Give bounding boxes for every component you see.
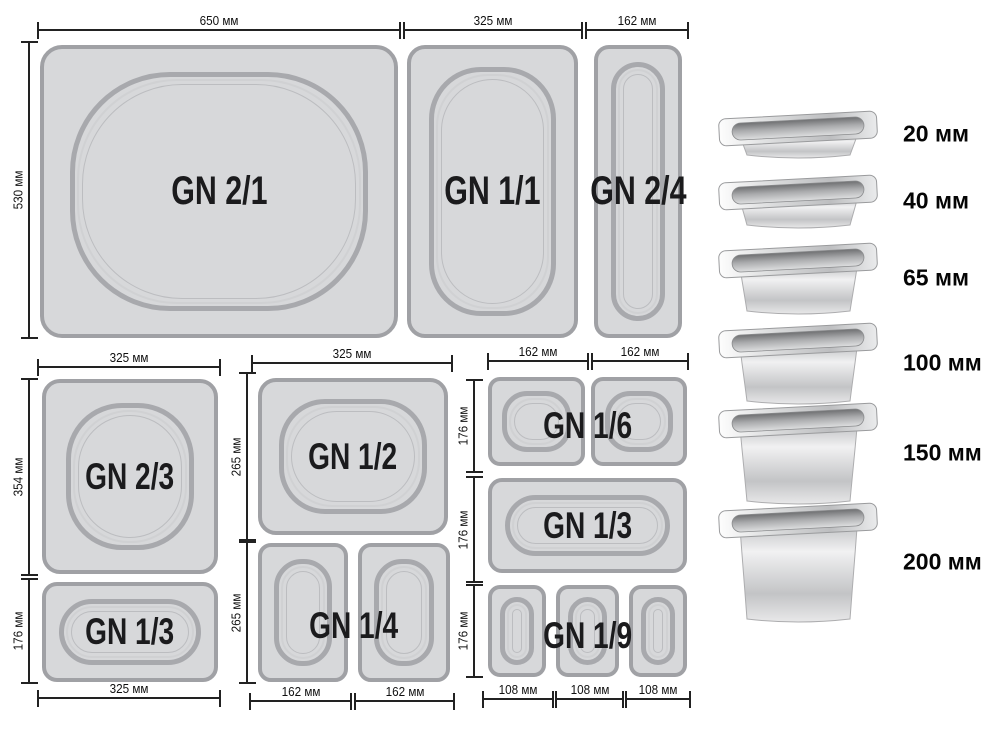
pan-depth-label: 40 мм	[903, 188, 969, 215]
pan-rim	[429, 67, 556, 316]
gastronorm-size-diagram: 650 мм 325 мм 162 мм 530 мм GN 2/1 GN 1/…	[0, 0, 998, 734]
dim-label: 162 мм	[385, 684, 424, 699]
dim-height-265-b: 265 мм	[246, 542, 248, 683]
pan-gn-1-1: GN 1/1	[407, 45, 578, 338]
depth-row: 150 мм	[716, 398, 998, 508]
pan-depth-label: 200 мм	[903, 549, 982, 576]
dim-height-176-c: 176 мм	[473, 585, 475, 677]
pan-rim	[605, 391, 673, 452]
tick	[399, 22, 401, 39]
tick	[453, 693, 455, 710]
dim-left-top-325: 325 мм	[38, 366, 220, 368]
depth-row: 200 мм	[716, 498, 998, 626]
dim-mid-top-325: 325 мм	[252, 362, 452, 364]
dim-label: 108 мм	[499, 682, 538, 697]
tick	[37, 359, 39, 376]
dim-height-176-left: 176 мм	[28, 579, 30, 683]
dim-label: 108 мм	[639, 682, 678, 697]
dim-right-top-162-a: 162 мм	[488, 360, 588, 362]
tick	[239, 372, 256, 374]
dim-label: 265 мм	[229, 593, 244, 632]
dim-height-176-b: 176 мм	[473, 477, 475, 582]
tick	[466, 581, 483, 583]
tick	[487, 353, 489, 370]
tick	[482, 691, 484, 708]
pan-gn-1-9-a	[488, 585, 546, 677]
dim-label: 162 мм	[519, 344, 558, 359]
depth-row: 40 мм	[716, 170, 998, 232]
dim-height-354: 354 мм	[28, 379, 30, 575]
pan-depth-label: 65 мм	[903, 265, 969, 292]
pan-photo	[716, 498, 880, 626]
pan-gn-1-6-b	[591, 377, 687, 466]
tick	[21, 574, 38, 576]
dim-right-bottom-108-b: 108 мм	[556, 698, 623, 700]
dim-label: 325 мм	[110, 350, 149, 365]
pan-photo	[716, 398, 880, 508]
tick	[219, 690, 221, 707]
tick	[37, 22, 39, 39]
pan-rim	[70, 72, 368, 311]
dim-mid-bottom-162-a: 162 мм	[250, 700, 351, 702]
tick	[585, 22, 587, 39]
tick	[21, 378, 38, 380]
tick	[239, 541, 256, 543]
pan-gn-1-4-b	[358, 543, 450, 682]
tick	[249, 693, 251, 710]
tick	[466, 476, 483, 478]
dim-label: 176 мм	[456, 407, 471, 446]
pan-rim	[66, 403, 194, 550]
pan-photo	[716, 106, 880, 162]
tick	[466, 584, 483, 586]
pan-gn-1-4-a	[258, 543, 348, 682]
pan-gn-1-9-c	[629, 585, 687, 677]
tick	[687, 353, 689, 370]
pan-rim	[374, 559, 434, 666]
dim-label: 354 мм	[11, 458, 26, 497]
dim-label: 162 мм	[618, 13, 657, 28]
tick	[625, 691, 627, 708]
pan-rim	[611, 62, 665, 321]
tick	[466, 471, 483, 473]
depth-row: 100 мм	[716, 318, 998, 408]
dim-height-265-a: 265 мм	[246, 373, 248, 540]
tick	[403, 22, 405, 39]
dim-width-325-top: 325 мм	[404, 29, 582, 31]
dim-label: 176 мм	[456, 510, 471, 549]
pan-gn-2-3: GN 2/3	[42, 379, 218, 574]
dim-label: 108 мм	[570, 682, 609, 697]
tick	[37, 690, 39, 707]
pan-photo	[716, 318, 880, 408]
pan-depth-label: 100 мм	[903, 350, 982, 377]
pan-gn-1-6-a	[488, 377, 585, 466]
pan-rim	[274, 559, 332, 666]
pan-rim	[279, 399, 427, 514]
tick	[21, 682, 38, 684]
pan-rim	[505, 495, 670, 556]
tick	[555, 691, 557, 708]
dim-label: 325 мм	[333, 346, 372, 361]
tick	[591, 353, 593, 370]
depth-row: 65 мм	[716, 238, 998, 318]
dim-label: 162 мм	[621, 344, 660, 359]
dim-label: 176 мм	[11, 612, 26, 651]
depth-column: 20 мм40 мм65 мм100 мм150 мм200 мм	[716, 0, 998, 734]
dim-right-bottom-108-a: 108 мм	[483, 698, 553, 700]
tick	[581, 22, 583, 39]
dim-left-bottom-325: 325 мм	[38, 697, 220, 699]
dim-label: 162 мм	[281, 684, 320, 699]
pan-depth-label: 20 мм	[903, 121, 969, 148]
dim-label: 325 мм	[110, 681, 149, 696]
pan-gn-1-3-left: GN 1/3	[42, 582, 218, 682]
pan-photo	[716, 238, 880, 318]
tick	[350, 693, 352, 710]
pan-photo	[716, 170, 880, 232]
dim-right-bottom-108-c: 108 мм	[626, 698, 690, 700]
pan-gn-1-9-b	[556, 585, 619, 677]
pan-rim	[641, 597, 675, 665]
dim-label: 325 мм	[474, 13, 513, 28]
tick	[687, 22, 689, 39]
tick	[354, 693, 356, 710]
tick	[552, 691, 554, 708]
pan-gn-1-2: GN 1/2	[258, 378, 448, 535]
pan-rim	[500, 597, 534, 665]
pan-rim	[568, 597, 607, 665]
tick	[21, 337, 38, 339]
dim-mid-bottom-162-b: 162 мм	[355, 700, 454, 702]
pan-rim	[502, 391, 571, 452]
tick	[466, 379, 483, 381]
depth-row: 20 мм	[716, 106, 998, 162]
pan-gn-2-4: GN 2/4	[594, 45, 682, 338]
tick	[239, 682, 256, 684]
pan-rim	[59, 599, 201, 665]
tick	[21, 578, 38, 580]
dim-width-650: 650 мм	[38, 29, 400, 31]
pan-gn-2-1: GN 2/1	[40, 45, 398, 338]
pan-depth-label: 150 мм	[903, 440, 982, 467]
tick	[622, 691, 624, 708]
tick	[466, 676, 483, 678]
dim-right-top-162-b: 162 мм	[592, 360, 688, 362]
tick	[219, 359, 221, 376]
tick	[251, 355, 253, 372]
tick	[587, 353, 589, 370]
dim-label: 265 мм	[229, 437, 244, 476]
tick	[21, 41, 38, 43]
tick	[689, 691, 691, 708]
dim-width-162-top: 162 мм	[586, 29, 688, 31]
dim-height-530: 530 мм	[28, 42, 30, 338]
pan-gn-1-3-right: GN 1/3	[488, 478, 687, 573]
dim-label: 530 мм	[11, 171, 26, 210]
dim-label: 650 мм	[200, 13, 239, 28]
dim-height-176-a: 176 мм	[473, 380, 475, 472]
dim-label: 176 мм	[456, 612, 471, 651]
tick	[451, 355, 453, 372]
